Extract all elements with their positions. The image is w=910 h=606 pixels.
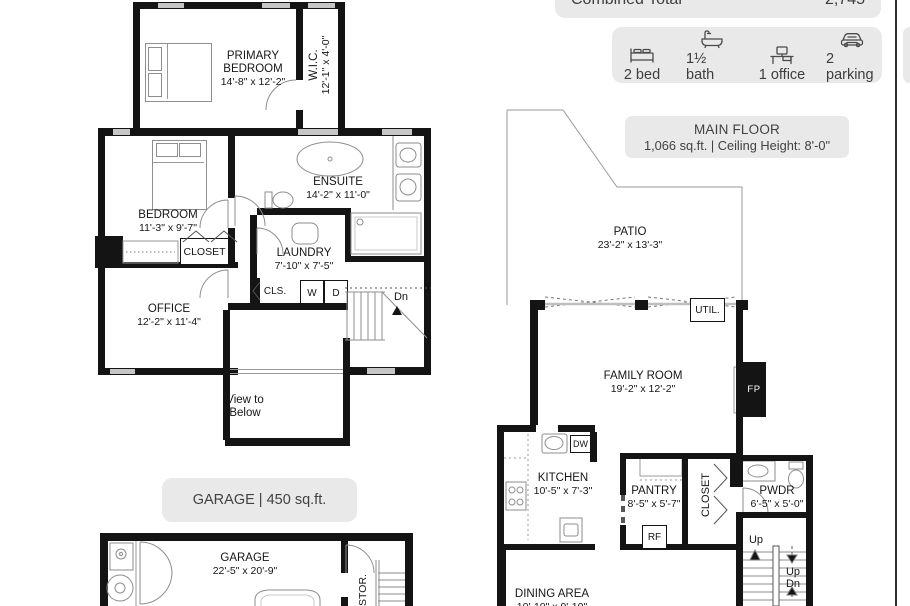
garage-label: GARAGE22'-5" x 20'-9": [213, 552, 278, 577]
fridge-label: RF: [648, 532, 661, 543]
fireplace-box: FP: [742, 362, 766, 417]
combined-total-value: 2,745: [825, 0, 865, 9]
bath-icon: [698, 28, 726, 49]
dishwasher-label: DW: [573, 439, 588, 449]
office-icon: [768, 44, 796, 65]
wic-label: W.I.C. 12'-1" x 4'-0": [308, 36, 332, 95]
dining-area-label: DINING AREA: [515, 588, 589, 601]
parking-icon: [838, 28, 866, 49]
util-box: UTIL.: [690, 298, 725, 322]
main-floor-plan: UTIL. FP DW RF PATIO23'-2" x 13'-3" FAMI…: [490, 100, 860, 606]
up-left-label: Up: [749, 534, 763, 547]
garage-header: GARAGE | 450 sq.ft.: [162, 478, 357, 522]
view-to-below-label: View toBelow: [226, 394, 264, 420]
upper-dn-label: Dn: [394, 291, 408, 304]
laundry-label: LAUNDRY7'-10" x 7'-5": [275, 247, 334, 272]
dn-right-label: Dn: [786, 578, 800, 591]
up-right-label: Up: [786, 566, 800, 579]
feature-office-label: 1 office: [759, 67, 806, 83]
ensuite-label: ENSUITE14'-2" x 11'-0": [306, 176, 370, 201]
kitchen-label: KITCHEN10'-5" x 7'-3": [534, 472, 593, 497]
dining-area-dim: 10'-10" x 9'-10": [517, 601, 587, 606]
util-label: UTIL.: [695, 305, 719, 316]
feature-office: 1 office: [756, 44, 808, 83]
features-pill: 2 bed 1½ bath 1 office: [612, 27, 882, 83]
cls-label: CLS.: [264, 286, 286, 298]
dishwasher-box: DW: [570, 435, 591, 453]
combined-total-label: Combined Total: [571, 0, 682, 9]
upper-floor-plan: CLOSET W D: [95, 0, 435, 458]
floorplan-image: Combined Total 2,745 2 bed 1½ bath: [0, 0, 910, 606]
feature-bed: 2 bed: [616, 44, 668, 83]
combined-total-card: Combined Total 2,745: [555, 0, 881, 18]
bedroom-label: BEDROOM11'-3" x 9'-7": [138, 209, 197, 234]
stor-label: STOR.: [357, 574, 369, 606]
pantry-label: PANTRY8'-5" x 5'-7": [628, 485, 681, 510]
carousel-divider: [895, 0, 897, 606]
feature-parking-label: 2 parking: [826, 51, 878, 83]
stairs-down-arrow-icon: [787, 555, 797, 563]
fridge-box: RF: [642, 525, 667, 549]
garage-plan: GARAGE22'-5" x 20'-9" STOR.: [95, 530, 435, 606]
primary-bedroom-label: PRIMARYBEDROOM 14'-8" x 12'-2": [221, 50, 286, 89]
garage-header-label: GARAGE | 450 sq.ft.: [193, 492, 327, 508]
main-plan-linework: [490, 100, 860, 606]
patio-label: PATIO23'-2" x 13'-3": [598, 226, 663, 251]
bed-icon: [628, 44, 656, 65]
feature-bath: 1½ bath: [686, 28, 738, 83]
pwdr-label: PWDR6'-5" x 5'-0": [751, 485, 804, 510]
family-room-label: FAMILY ROOM19'-2" x 12'-2": [604, 370, 683, 395]
fireplace-label: FP: [747, 384, 760, 395]
office-label: OFFICE12'-2" x 11'-4": [137, 303, 201, 328]
main-closet-label: CLOSET: [700, 473, 712, 517]
feature-bath-label: 1½ bath: [686, 51, 738, 83]
feature-bed-label: 2 bed: [624, 67, 660, 83]
feature-parking: 2 parking: [826, 28, 878, 83]
next-card-sliver[interactable]: [903, 27, 910, 83]
